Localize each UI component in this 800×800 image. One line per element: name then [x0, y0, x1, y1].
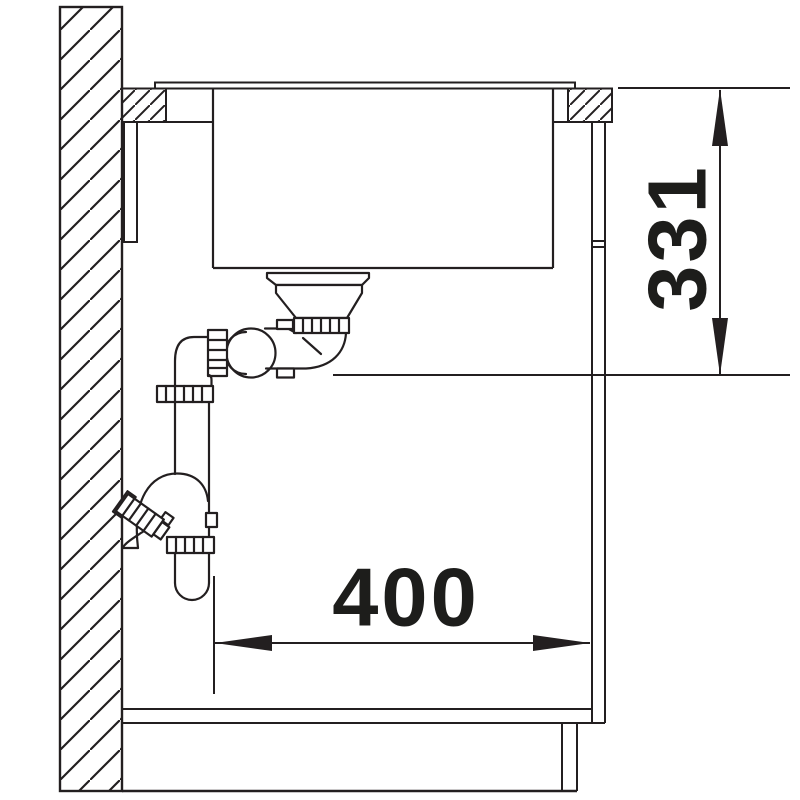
strainer-nut — [294, 318, 349, 333]
siphon-trap — [113, 320, 346, 600]
countertop-right-block — [568, 89, 612, 123]
dim-331-arrow-down — [712, 318, 728, 375]
dim-400-arrow-left — [215, 635, 272, 651]
dim-400-arrow-right — [533, 635, 590, 651]
plinth — [562, 723, 577, 791]
sink-basin — [213, 89, 553, 268]
cabinet-side-panel — [592, 122, 605, 723]
coupling-nut-vertical — [208, 330, 227, 376]
elbow-tab-bottom — [277, 369, 294, 378]
cabinet-bottom-shelf — [122, 709, 605, 723]
wall — [60, 7, 122, 791]
wall-rail — [124, 122, 137, 242]
dim-331-arrow-up — [712, 89, 728, 146]
pipe-u-bottom — [175, 583, 209, 600]
dimension-label-400: 400 — [332, 556, 479, 639]
dimension-label-331: 331 — [636, 164, 719, 311]
pipe-clip-tab — [206, 513, 217, 527]
drawing-canvas — [0, 0, 800, 800]
technical-drawing-sink-cross-section: 331 400 — [0, 0, 800, 800]
left-elbow — [175, 337, 212, 386]
elbow-tab-top — [277, 320, 293, 329]
strainer-flange — [267, 273, 369, 285]
pipe-nut-lower — [167, 537, 214, 553]
strainer-cup — [276, 285, 362, 318]
pipe-nut-upper — [157, 386, 213, 402]
countertop — [122, 83, 612, 123]
